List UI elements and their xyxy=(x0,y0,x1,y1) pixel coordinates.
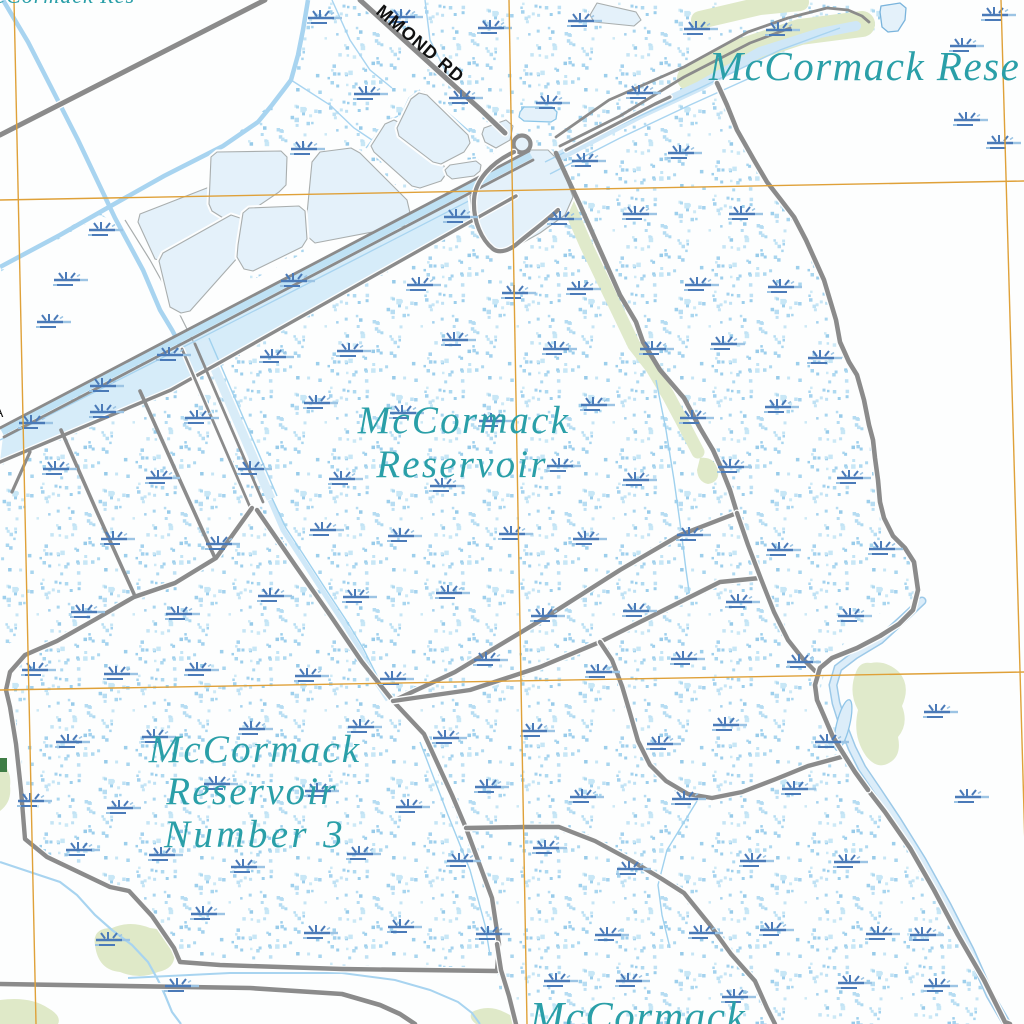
svg-text:Reservoir: Reservoir xyxy=(375,443,547,486)
svg-text:Reservoir: Reservoir xyxy=(165,770,337,813)
svg-text:McCormack: McCormack xyxy=(529,993,746,1024)
svg-text:Number 3: Number 3 xyxy=(163,813,346,856)
svg-text:McCormack Res: McCormack Res xyxy=(0,0,135,8)
svg-text:McCormack Rese: McCormack Rese xyxy=(708,43,1020,89)
svg-text:McCormack: McCormack xyxy=(357,399,571,442)
svg-text:McCormack: McCormack xyxy=(148,728,362,771)
